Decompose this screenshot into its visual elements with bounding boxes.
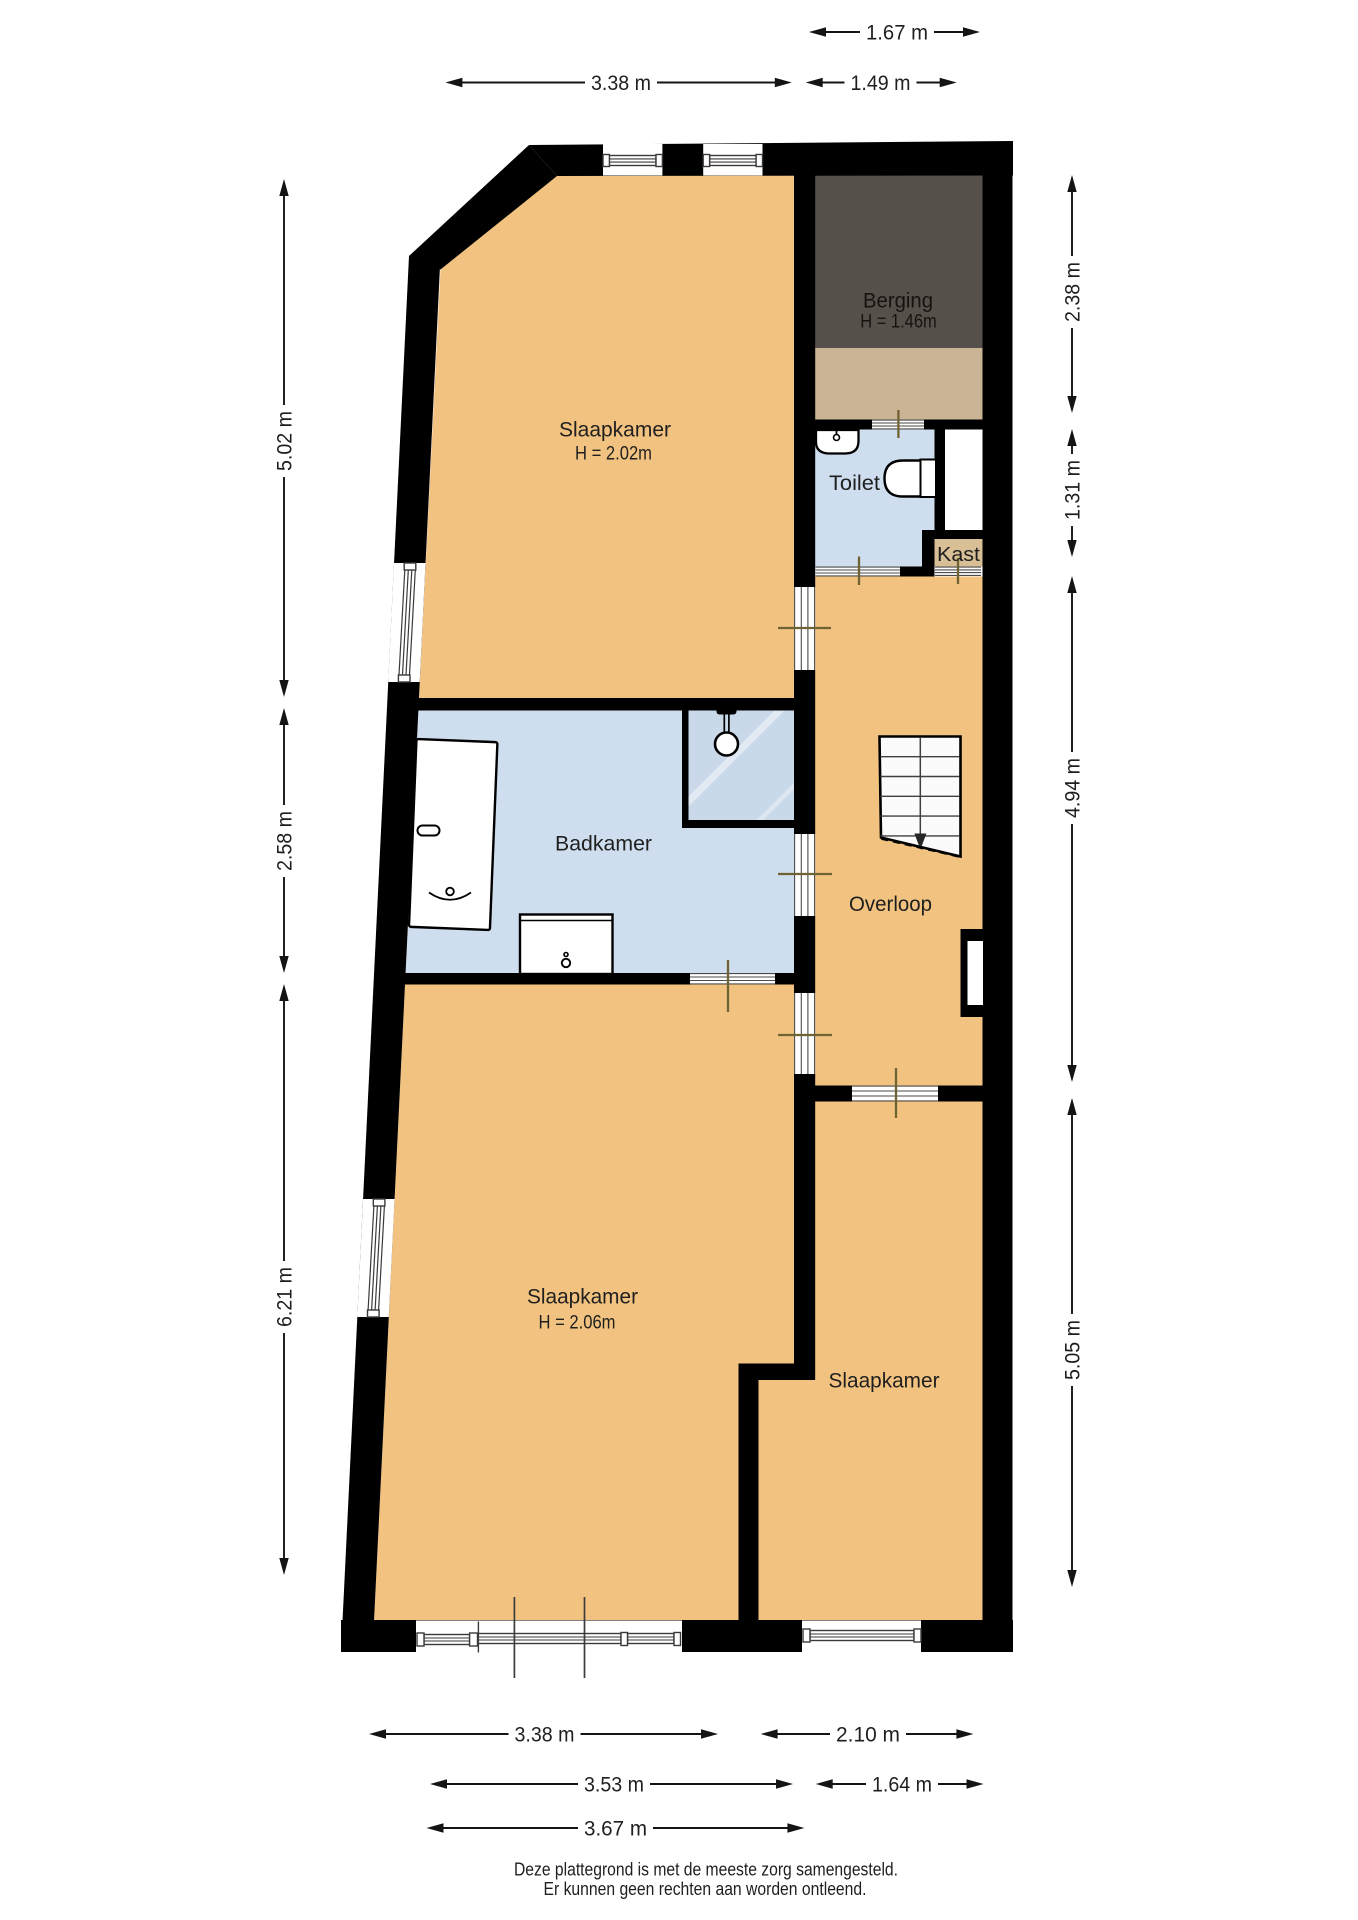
svg-text:Slaapkamer: Slaapkamer [527,1286,638,1309]
svg-text:Er kunnen geen rechten aan wor: Er kunnen geen rechten aan worden ontlee… [544,1879,867,1899]
svg-text:Slaapkamer: Slaapkamer [559,419,671,442]
svg-text:Deze plattegrond is met de mee: Deze plattegrond is met de meeste zorg s… [514,1860,898,1880]
svg-text:1.64 m: 1.64 m [872,1773,932,1796]
svg-text:1.31 m: 1.31 m [1061,460,1084,520]
svg-text:3.67 m: 3.67 m [584,1817,647,1840]
svg-text:H = 1.46m: H = 1.46m [860,312,937,333]
svg-text:Overloop: Overloop [849,893,932,916]
svg-text:2.10 m: 2.10 m [836,1723,900,1746]
svg-text:4.94 m: 4.94 m [1061,758,1084,818]
svg-text:H = 2.06m: H = 2.06m [539,1313,616,1334]
svg-text:1.49 m: 1.49 m [851,72,911,95]
svg-text:Badkamer: Badkamer [555,833,652,856]
svg-text:2.58 m: 2.58 m [273,811,296,871]
svg-text:5.05 m: 5.05 m [1061,1320,1084,1380]
svg-text:H = 2.02m: H = 2.02m [575,444,652,465]
svg-text:3.38 m: 3.38 m [515,1723,575,1746]
svg-text:Kast: Kast [937,544,980,566]
svg-text:5.02 m: 5.02 m [273,411,296,471]
svg-text:2.38 m: 2.38 m [1061,262,1084,322]
svg-text:3.53 m: 3.53 m [584,1773,644,1796]
svg-text:Berging: Berging [863,290,933,313]
svg-text:1.67 m: 1.67 m [866,21,928,44]
svg-text:3.38 m: 3.38 m [591,72,651,95]
svg-text:6.21 m: 6.21 m [273,1267,296,1327]
svg-text:Toilet: Toilet [829,472,880,495]
svg-text:Slaapkamer: Slaapkamer [829,1370,940,1393]
